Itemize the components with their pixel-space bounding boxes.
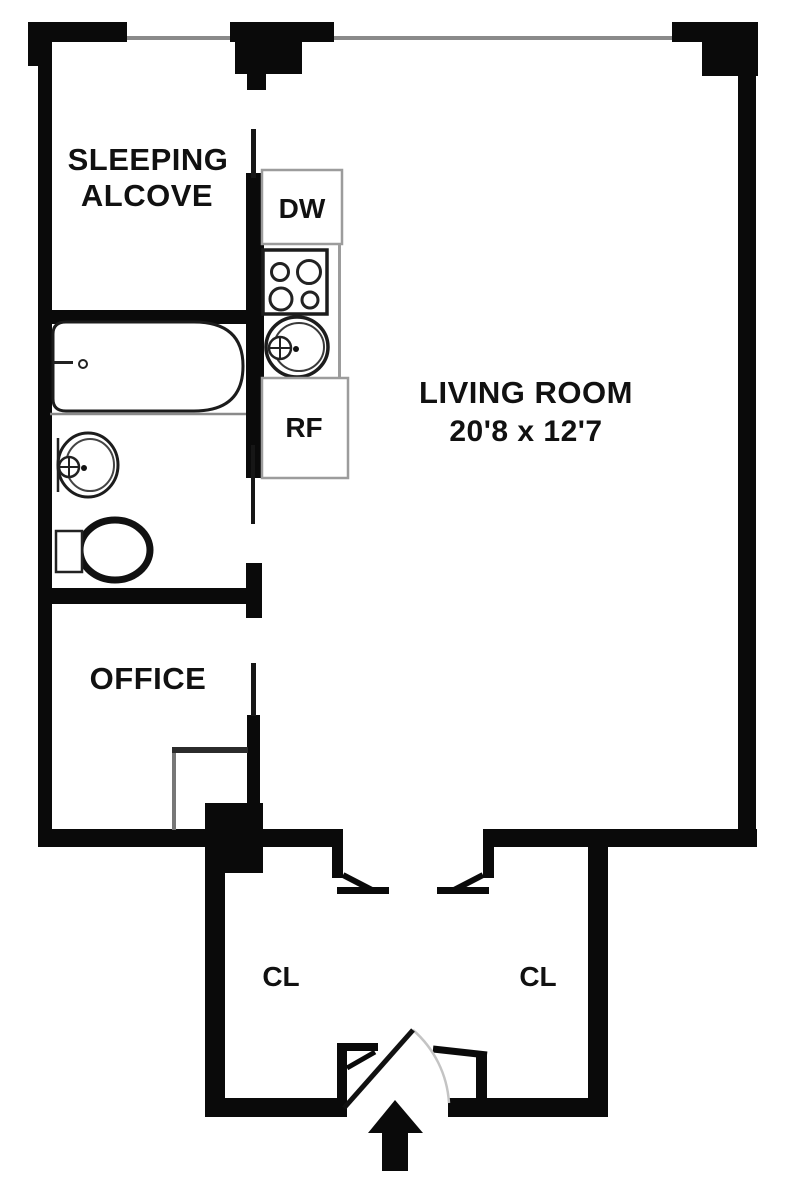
opening-right-jamb-stub	[483, 847, 494, 878]
opening-left-jamb-stub	[332, 847, 343, 878]
entry-right-jamb-stub	[476, 1053, 487, 1099]
bottom-wall-right	[483, 829, 757, 847]
alcove-window-glass-line	[127, 36, 230, 40]
opening-right-jamb-bar	[437, 887, 489, 894]
office-door-leaf	[251, 663, 256, 716]
top-right-jog	[702, 42, 758, 76]
alcove-door-leaf	[251, 129, 256, 178]
top-middle-jog-stub	[247, 74, 266, 90]
bathtub-faucet	[53, 361, 73, 364]
office-label: OFFICE	[90, 661, 207, 696]
counter-edge-line	[338, 244, 341, 378]
right-wall	[738, 42, 756, 847]
toilet-tank	[56, 531, 82, 572]
bathroom-door-leaf	[251, 445, 255, 524]
left-wall	[38, 42, 52, 829]
bathroom-office-wall	[38, 588, 262, 604]
vestibule-top-opening	[332, 847, 494, 894]
office-closet-side-line	[172, 753, 176, 830]
office-closet-top-line	[172, 747, 248, 753]
living-room-window-glass-line	[334, 36, 672, 40]
sleeping-alcove-label-line2: ALCOVE	[81, 178, 213, 213]
refrigerator-label: RF	[285, 412, 322, 443]
entry-arrow-shaft	[382, 1133, 408, 1171]
bathroom-faucet-spout	[81, 465, 87, 471]
bathroom-door-stub	[246, 563, 262, 618]
sleeping-alcove-label-line1: SLEEPING	[68, 142, 229, 177]
bathtub-drain	[79, 360, 87, 368]
toilet-bowl	[80, 520, 150, 580]
vestibule-right-wall	[588, 847, 608, 1117]
floor-plan: SLEEPING ALCOVE LIVING ROOM 20'8 x 12'7 …	[0, 0, 800, 1181]
opening-left-jamb-bar	[337, 887, 389, 894]
bottom-wall-left	[38, 829, 343, 847]
windows	[127, 22, 672, 42]
vestibule-left-wall	[205, 847, 225, 1117]
entry-left-jamb-stub	[337, 1051, 347, 1099]
entry-left-jamb-bar	[337, 1043, 378, 1051]
dishwasher-label: DW	[279, 193, 326, 224]
entry-door-swing-arc	[413, 1030, 449, 1103]
closet-left-label: CL	[262, 961, 299, 992]
entry-door-leaf	[344, 1030, 413, 1108]
closet-right-label: CL	[519, 961, 556, 992]
top-middle-jog	[235, 42, 302, 74]
bathroom	[50, 322, 246, 580]
vestibule-bottom-wall-right	[448, 1098, 608, 1117]
floor-plan-drawing: SLEEPING ALCOVE LIVING ROOM 20'8 x 12'7 …	[0, 0, 800, 1181]
vestibule-bottom-wall-left	[205, 1098, 347, 1117]
kitchen-faucet-spout	[293, 346, 299, 352]
entry-left-jamb-angle	[347, 1052, 375, 1068]
living-room-dimensions: 20'8 x 12'7	[449, 415, 602, 448]
living-room-label: LIVING ROOM	[419, 375, 633, 410]
entry-arrow-head	[368, 1100, 423, 1133]
